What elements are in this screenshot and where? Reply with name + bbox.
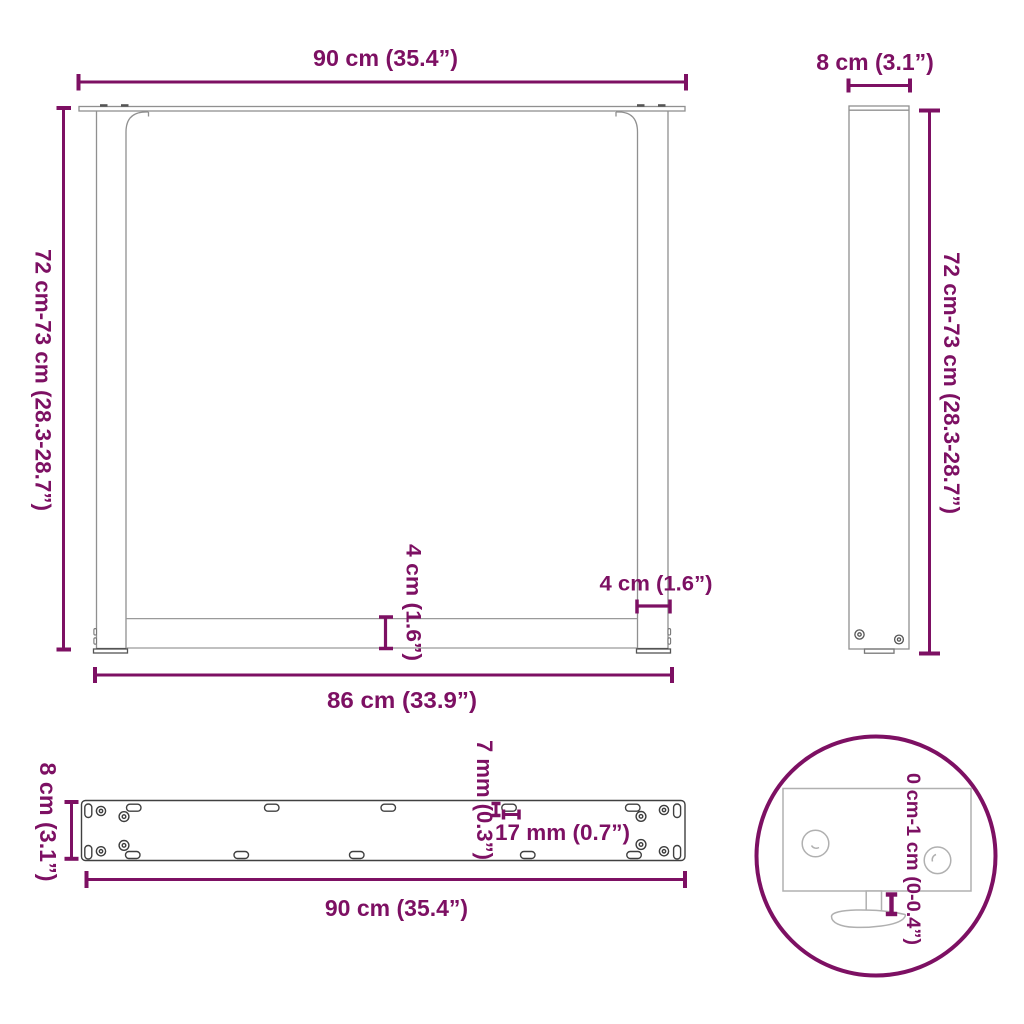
svg-text:90 cm (35.4”): 90 cm (35.4”) [325, 895, 468, 921]
svg-text:0 cm-1 cm (0-0.4”): 0 cm-1 cm (0-0.4”) [902, 773, 923, 945]
svg-text:8 cm (3.1”): 8 cm (3.1”) [816, 49, 934, 75]
svg-text:4 cm (1.6”): 4 cm (1.6”) [600, 573, 713, 596]
svg-text:72 cm-73 cm (28.3-28.7”): 72 cm-73 cm (28.3-28.7”) [939, 252, 964, 514]
svg-text:90 cm (35.4”): 90 cm (35.4”) [313, 45, 458, 71]
svg-text:8 cm (3.1”): 8 cm (3.1”) [35, 763, 61, 882]
svg-text:7 mm (0.3”): 7 mm (0.3”) [472, 740, 497, 860]
svg-text:4 cm (1.6”): 4 cm (1.6”) [402, 544, 425, 661]
svg-text:86 cm (33.9”): 86 cm (33.9”) [327, 687, 477, 713]
svg-text:72 cm-73 cm (28.3-28.7”): 72 cm-73 cm (28.3-28.7”) [31, 249, 56, 511]
svg-text:17 mm (0.7”): 17 mm (0.7”) [495, 820, 630, 845]
